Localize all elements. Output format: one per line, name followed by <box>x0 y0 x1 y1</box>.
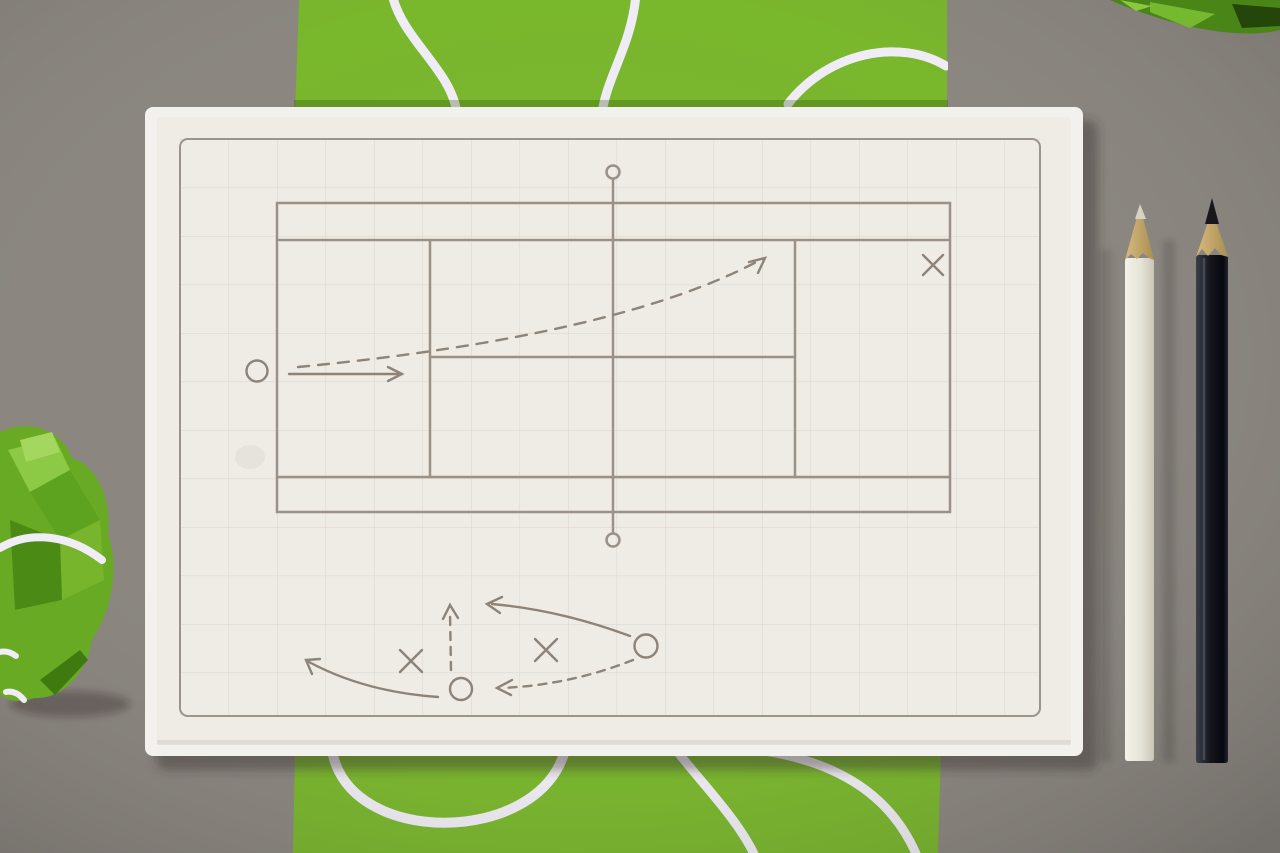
white-pencil-shadow <box>1100 250 1112 762</box>
paper-bottom-shading <box>157 740 1071 745</box>
white-pencil-body <box>1125 258 1154 761</box>
white-pencil <box>1125 204 1154 761</box>
black-pencil-body <box>1196 255 1228 763</box>
dashed-arrow-up <box>450 612 451 670</box>
black-pencil-shadow <box>1163 240 1175 762</box>
scene-canvas <box>0 0 1280 853</box>
black-pencil <box>1196 198 1228 763</box>
photo-scene <box>0 0 1280 853</box>
